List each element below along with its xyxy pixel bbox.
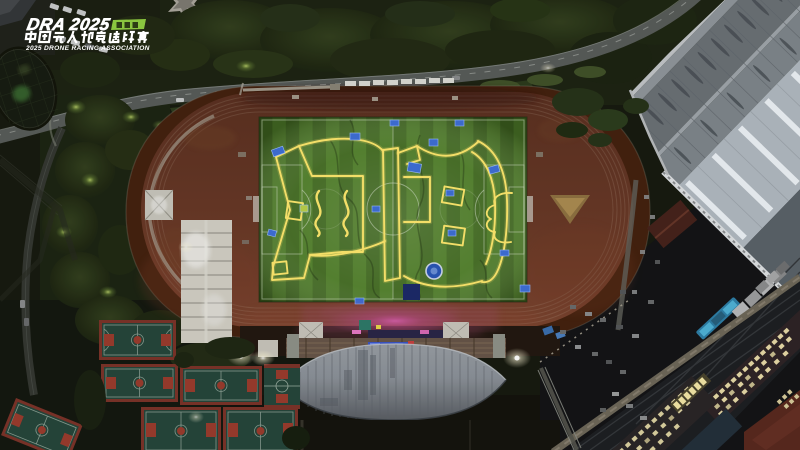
svg-text:2025 DRONE RACING ASSOCIATION: 2025 DRONE RACING ASSOCIATION [25, 45, 150, 52]
svg-text:DRA 2025: DRA 2025 [25, 14, 112, 34]
